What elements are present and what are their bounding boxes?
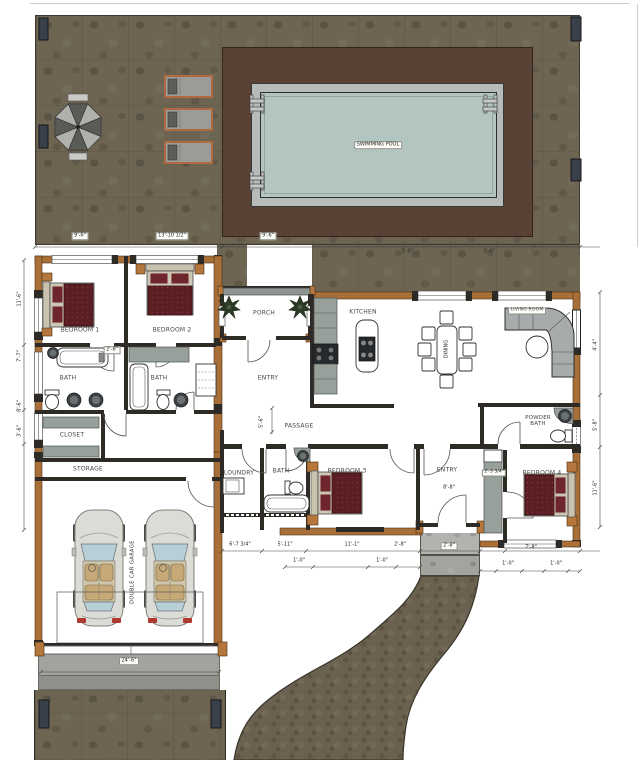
dim-stoop: 2'-8"	[441, 542, 458, 550]
dim-deck-a: 9'-6"	[72, 232, 89, 240]
dim-right-b: 5'-8"	[593, 419, 599, 431]
label-kitchen: KITCHEN	[349, 310, 376, 317]
label-bath2: BATH	[151, 376, 168, 383]
garage-door	[35, 642, 227, 656]
entry-cabinet	[484, 450, 502, 533]
stone-walkway	[234, 576, 479, 760]
dim-deck-b: 13'-10 1/2"	[156, 232, 189, 240]
coffee-table	[526, 336, 548, 358]
floor-plan-canvas: SWIMMING POOL 9'-6" 13'-10 1/2" 9'-6" 3'…	[0, 0, 642, 760]
dim-right-c: 11'-6"	[593, 480, 599, 495]
label-passage: PASSAGE	[285, 424, 314, 431]
label-garage: DOUBLE CAR GARAGE	[130, 540, 136, 604]
kitchen-island	[356, 320, 378, 372]
dim-deck-c: 9'-6"	[260, 232, 277, 240]
dim-bottom-d: 2'-8"	[394, 542, 406, 548]
dim-cabinet: 2'-3 3/4"	[482, 470, 506, 477]
label-dining: DINING	[444, 340, 450, 358]
label-porch: PORCH	[253, 311, 275, 318]
dim-left-c: 8'-6"	[17, 400, 23, 412]
dim-driveway: 24'-6"	[119, 657, 139, 665]
kitchen-cabinets	[313, 298, 338, 394]
label-powder-bath: POWDER BATH	[523, 415, 553, 427]
patio-umbrella	[55, 94, 101, 160]
dim-window-a: 3'-0"	[401, 249, 413, 255]
label-bedroom2: BEDROOM 2	[153, 328, 192, 335]
label-bedroom4: BEDROOM 4	[523, 471, 562, 478]
dim-bottom-a: 6'-7 3/4"	[229, 542, 250, 548]
dim-mid-gap: 2'-8"	[104, 346, 121, 354]
dim-left-a: 11'-6"	[17, 291, 23, 306]
label-closet: CLOSET	[60, 433, 85, 440]
label-storage: STORAGE	[73, 467, 103, 474]
porch-step	[220, 288, 312, 295]
plan-drawing	[0, 0, 642, 760]
dim-one-a: 1'-0"	[293, 558, 305, 564]
dim-bottom-c: 11'-1"	[344, 542, 359, 548]
laundry-washer	[223, 478, 244, 494]
dim-one-b: 1'-0"	[376, 558, 388, 564]
label-bath1: BATH	[60, 376, 77, 383]
dim-bottom-b: 5'-11"	[277, 542, 292, 548]
label-bath3: BATH	[273, 469, 290, 476]
label-entry2: ENTRY	[437, 468, 457, 475]
label-bedroom3: BEDROOM 3	[328, 469, 367, 476]
dim-right-a: 4'-4"	[593, 339, 599, 351]
dim-one-c: 1'-0"	[502, 561, 514, 567]
dim-left-d: 3'-6"	[17, 425, 23, 437]
dim-window-b: 3'-0"	[483, 249, 495, 255]
dim-passage: 5'-6"	[259, 416, 265, 428]
label-bedroom1: BEDROOM 1	[61, 328, 100, 335]
dim-entry-width: 8'-8"	[443, 485, 455, 491]
label-living-room: LIVING ROOM	[508, 308, 546, 315]
dim-left-b: 7'-7"	[17, 350, 23, 362]
pool-loungers	[165, 76, 212, 163]
label-entry: ENTRY	[258, 376, 278, 383]
dim-one-d: 1'-0"	[550, 561, 562, 567]
pool-label: SWIMMING POOL	[354, 141, 402, 149]
dim-bedroom4-width: 7'-8"	[525, 545, 537, 551]
label-laundry: LOUNDRY	[224, 471, 254, 478]
